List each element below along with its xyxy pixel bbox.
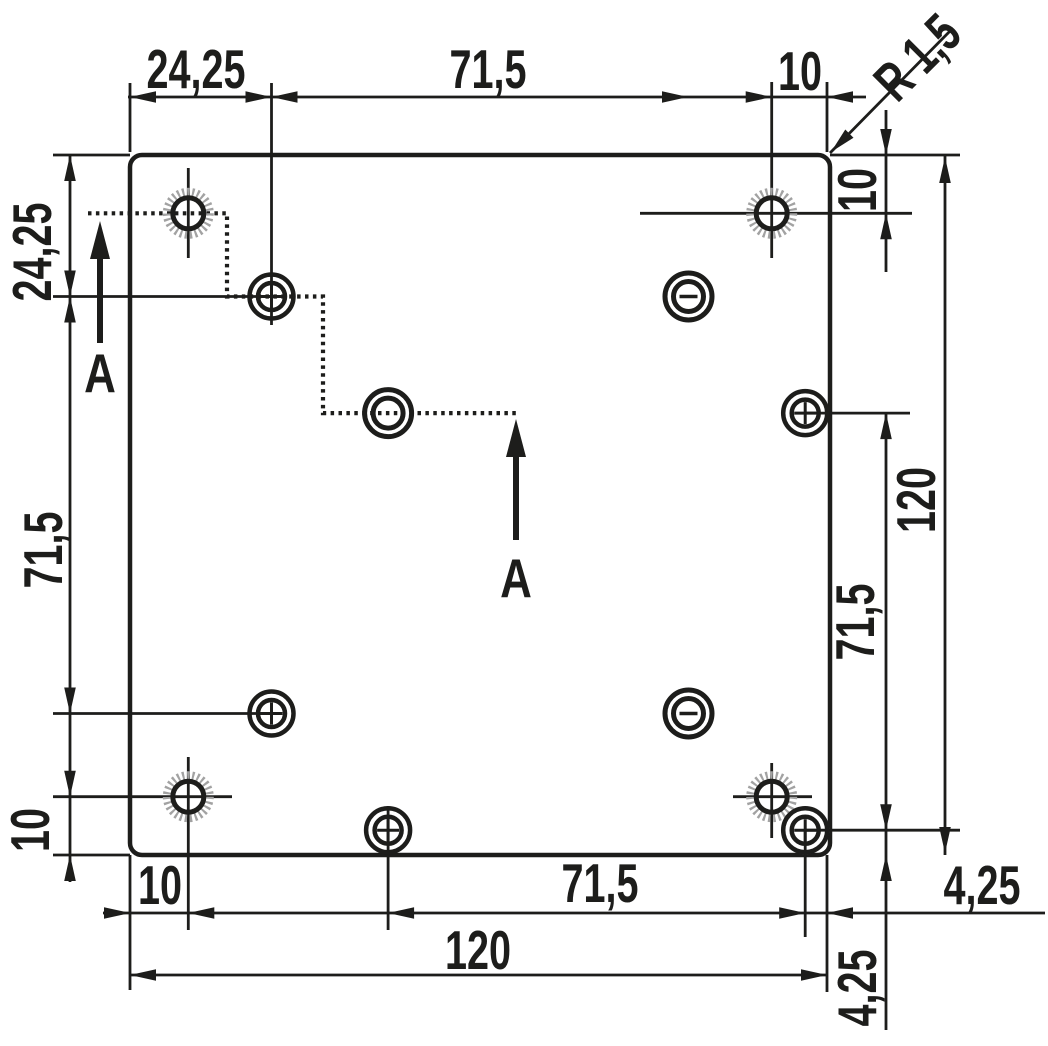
hole-plus — [250, 692, 294, 736]
hole-plus — [366, 808, 410, 852]
dim-bottom-71-5: 71,5 — [561, 854, 638, 915]
dim-bottom-right-4-25: 4,25 — [828, 949, 889, 1026]
hole-minus — [665, 690, 712, 737]
hole-plus — [783, 808, 827, 852]
dim-right-4-25: 4,25 — [943, 856, 1020, 917]
hole-plus — [783, 391, 827, 435]
plate-outline — [130, 155, 830, 855]
dim-right-120: 120 — [887, 467, 948, 533]
dim-left-10: 10 — [1, 808, 62, 852]
dim-top-10: 10 — [778, 42, 822, 103]
dim-top-71-5: 71,5 — [449, 40, 526, 101]
dim-right-71-5: 71,5 — [826, 583, 887, 660]
hole-plus — [250, 275, 294, 319]
dim-bottom-10: 10 — [138, 856, 182, 917]
dim-top-24-25: 24,25 — [146, 40, 245, 101]
plate-drawing-svg: 24,2571,510R 1,51012071,54,254,251071,51… — [0, 0, 1048, 1046]
dim-bottom-120: 120 — [445, 921, 511, 982]
dim-right-10: 10 — [828, 168, 889, 212]
technical-drawing-canvas: 24,2571,510R 1,51012071,54,254,251071,51… — [0, 0, 1048, 1046]
dim-left-24-25: 24,25 — [3, 202, 64, 301]
section-label-a-left: A — [84, 342, 116, 404]
plate-body — [130, 155, 830, 855]
section-label-a-right: A — [500, 547, 532, 609]
hole-minus — [665, 273, 712, 320]
dim-left-71-5: 71,5 — [14, 511, 75, 588]
